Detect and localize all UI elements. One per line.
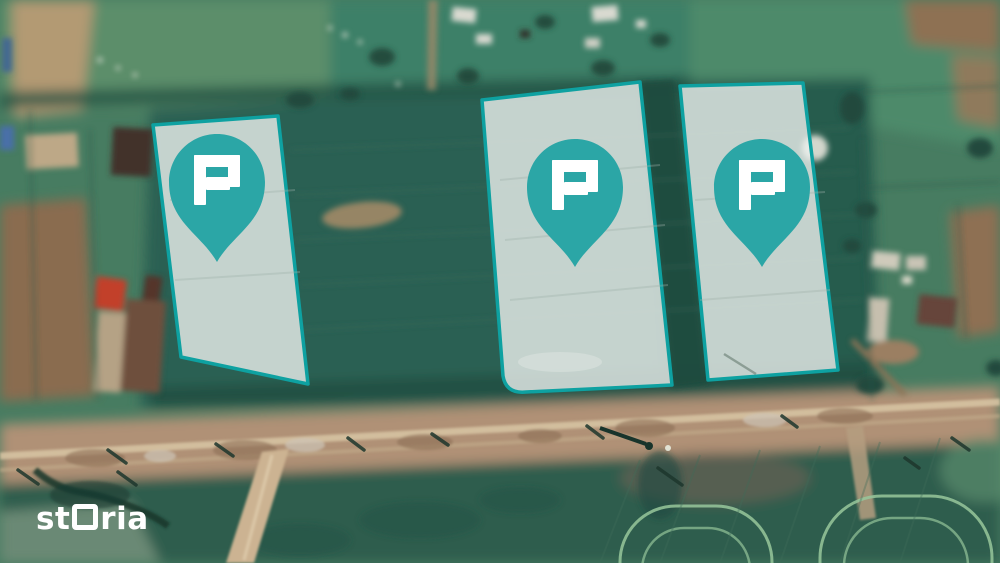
- listing-photo: st ria: [0, 0, 1000, 563]
- satellite-photo: [0, 0, 1000, 563]
- storia-wordmark: st ria: [36, 504, 149, 535]
- wordmark-suffix: ria: [100, 504, 148, 535]
- wordmark-prefix: st: [36, 504, 70, 535]
- storia-square-o-icon: [72, 504, 98, 530]
